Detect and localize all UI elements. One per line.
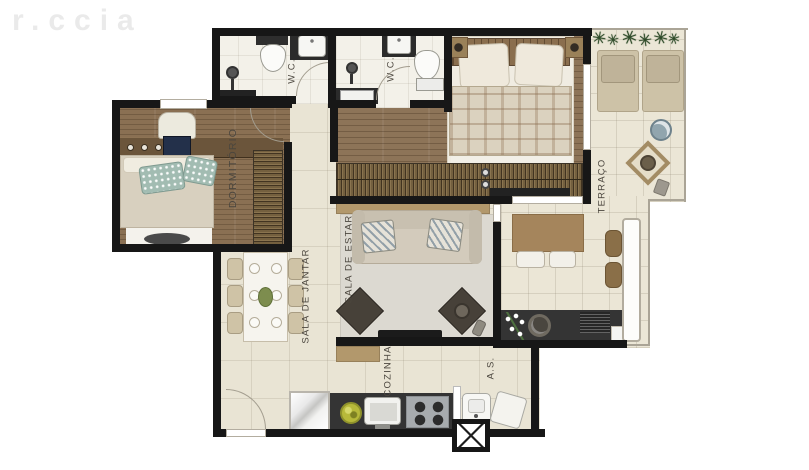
island-bowl: [528, 314, 551, 337]
suite-pillow-right: [514, 43, 564, 87]
kitchen-sideboard: [336, 346, 380, 362]
wc2-shower-arm: [350, 74, 353, 84]
suite-nightstand-right: [565, 37, 584, 58]
gourmet-chair-left: [516, 251, 545, 268]
terrace-side-table: [650, 119, 672, 141]
wc1-sink: [298, 35, 326, 57]
dining-plate-5: [249, 317, 260, 328]
floor-plan-canvas: ✳ ✳ ✳ ✳ ✳ ✳ DORMITÓRIO W.C. W.C. SALA DE…: [0, 0, 809, 470]
dorm1-knob-1: [127, 144, 134, 151]
window-suite-terrace: [583, 64, 591, 150]
dorm1-knob-3: [155, 144, 162, 151]
label-wc2: W.C.: [386, 56, 397, 81]
label-sala-de-jantar: SALA DE JANTAR: [301, 248, 312, 343]
suite-tv-console: [490, 188, 570, 196]
dining-chair-l3: [227, 312, 243, 334]
label-wc1: W.C.: [287, 58, 298, 83]
kitchen-stove: [406, 396, 449, 428]
wall-dorm1-right-top: [284, 100, 292, 108]
gourmet-table: [512, 214, 584, 252]
dining-plate-6: [271, 317, 282, 328]
suite-knob-top: [481, 168, 490, 177]
wall-island-bottom: [497, 340, 627, 348]
wc1-shower-head-icon: [226, 66, 239, 79]
living-pillow-left: [360, 219, 396, 253]
label-area-de-servico: A.S.: [486, 357, 497, 380]
gourmet-stool-2: [605, 262, 622, 288]
wall-living-terrace: [493, 222, 501, 348]
wc2-shower-head-icon: [346, 62, 358, 74]
wall-top: [212, 28, 592, 36]
wc1-shower-arm: [231, 79, 234, 90]
watermark-logo: r.ccia: [12, 4, 143, 38]
wall-bottom-left: [213, 429, 226, 437]
island-grill: [580, 312, 610, 333]
kitchen-fridge: [289, 391, 330, 431]
terrace-lounge-cushion-left: [601, 55, 635, 83]
living-sofa-armrest-right: [469, 210, 482, 264]
window-dorm1: [160, 99, 207, 109]
living-pillow-right: [426, 218, 464, 252]
wc2-toilet-tank: [416, 78, 444, 91]
service-washer-lid: [468, 399, 485, 413]
island-flowers: [503, 312, 527, 340]
dorm1-wardrobe: [253, 150, 283, 247]
wall-hall-suite-divider: [330, 104, 338, 162]
dining-plate-2: [271, 263, 282, 274]
wall-dorm1-top-right: [207, 100, 292, 108]
dining-chair-l1: [227, 258, 243, 280]
shaft-box: [452, 419, 490, 452]
terrace-edge-step: [648, 199, 686, 201]
suite-knob-bottom: [481, 180, 490, 189]
wall-dorm1-bottom: [112, 244, 292, 252]
suite-wardrobe-divider: [336, 179, 583, 180]
label-sala-de-estar: SALA DE ESTAR: [344, 215, 355, 304]
entry-door-opening: [226, 429, 266, 437]
dining-centerpiece: [258, 287, 273, 307]
wall-service-right: [531, 345, 539, 437]
label-cozinha: COZINHA: [383, 345, 394, 396]
wall-dorm1-right: [284, 142, 292, 252]
wall-wc2-bottom-left: [336, 100, 376, 108]
wall-suite-right-upper: [583, 28, 591, 64]
wall-suite-living: [330, 196, 512, 204]
label-dormitorio: DORMITÓRIO: [227, 128, 239, 208]
glass-door-suite-terrace: [512, 196, 583, 204]
dorm1-desk-chair: [158, 112, 196, 139]
kitchen-fruit-bowl: [340, 402, 362, 424]
gourmet-bar-counter: [622, 218, 641, 342]
wall-left-lower: [213, 250, 221, 437]
terrace-lounge-cushion-right: [646, 55, 680, 83]
plant-icon: ✳: [637, 31, 653, 50]
terrace-table-bowl: [640, 155, 656, 171]
gourmet-chair-right: [549, 251, 576, 268]
service-washer-knob: [474, 414, 478, 418]
wall-dorm1-left: [112, 100, 120, 252]
wall-wc1-left: [212, 28, 220, 106]
kitchen-sink: [364, 397, 401, 425]
dining-plate-1: [249, 263, 260, 274]
wall-suite-right-lower: [583, 150, 591, 204]
dining-chair-l2: [227, 285, 243, 307]
living-tray-bowl: [454, 303, 470, 319]
dorm1-knob-2: [141, 144, 148, 151]
wall-bottom: [266, 429, 545, 437]
opening-living-terrace: [493, 204, 501, 222]
suite-blanket: [449, 86, 572, 156]
terrace-edge-right-upper: [684, 28, 686, 202]
terrace-edge-right-lower: [648, 199, 650, 346]
wall-living-kitchen-half: [336, 337, 497, 346]
wall-wc2-bottom-right: [410, 100, 452, 108]
gourmet-stool-1: [605, 230, 622, 257]
label-terraco: TERRAÇO: [597, 159, 608, 214]
terrace-edge-bottom: [627, 344, 650, 346]
wc2-sink: [387, 34, 411, 54]
plant-icon: ✳: [591, 29, 608, 48]
